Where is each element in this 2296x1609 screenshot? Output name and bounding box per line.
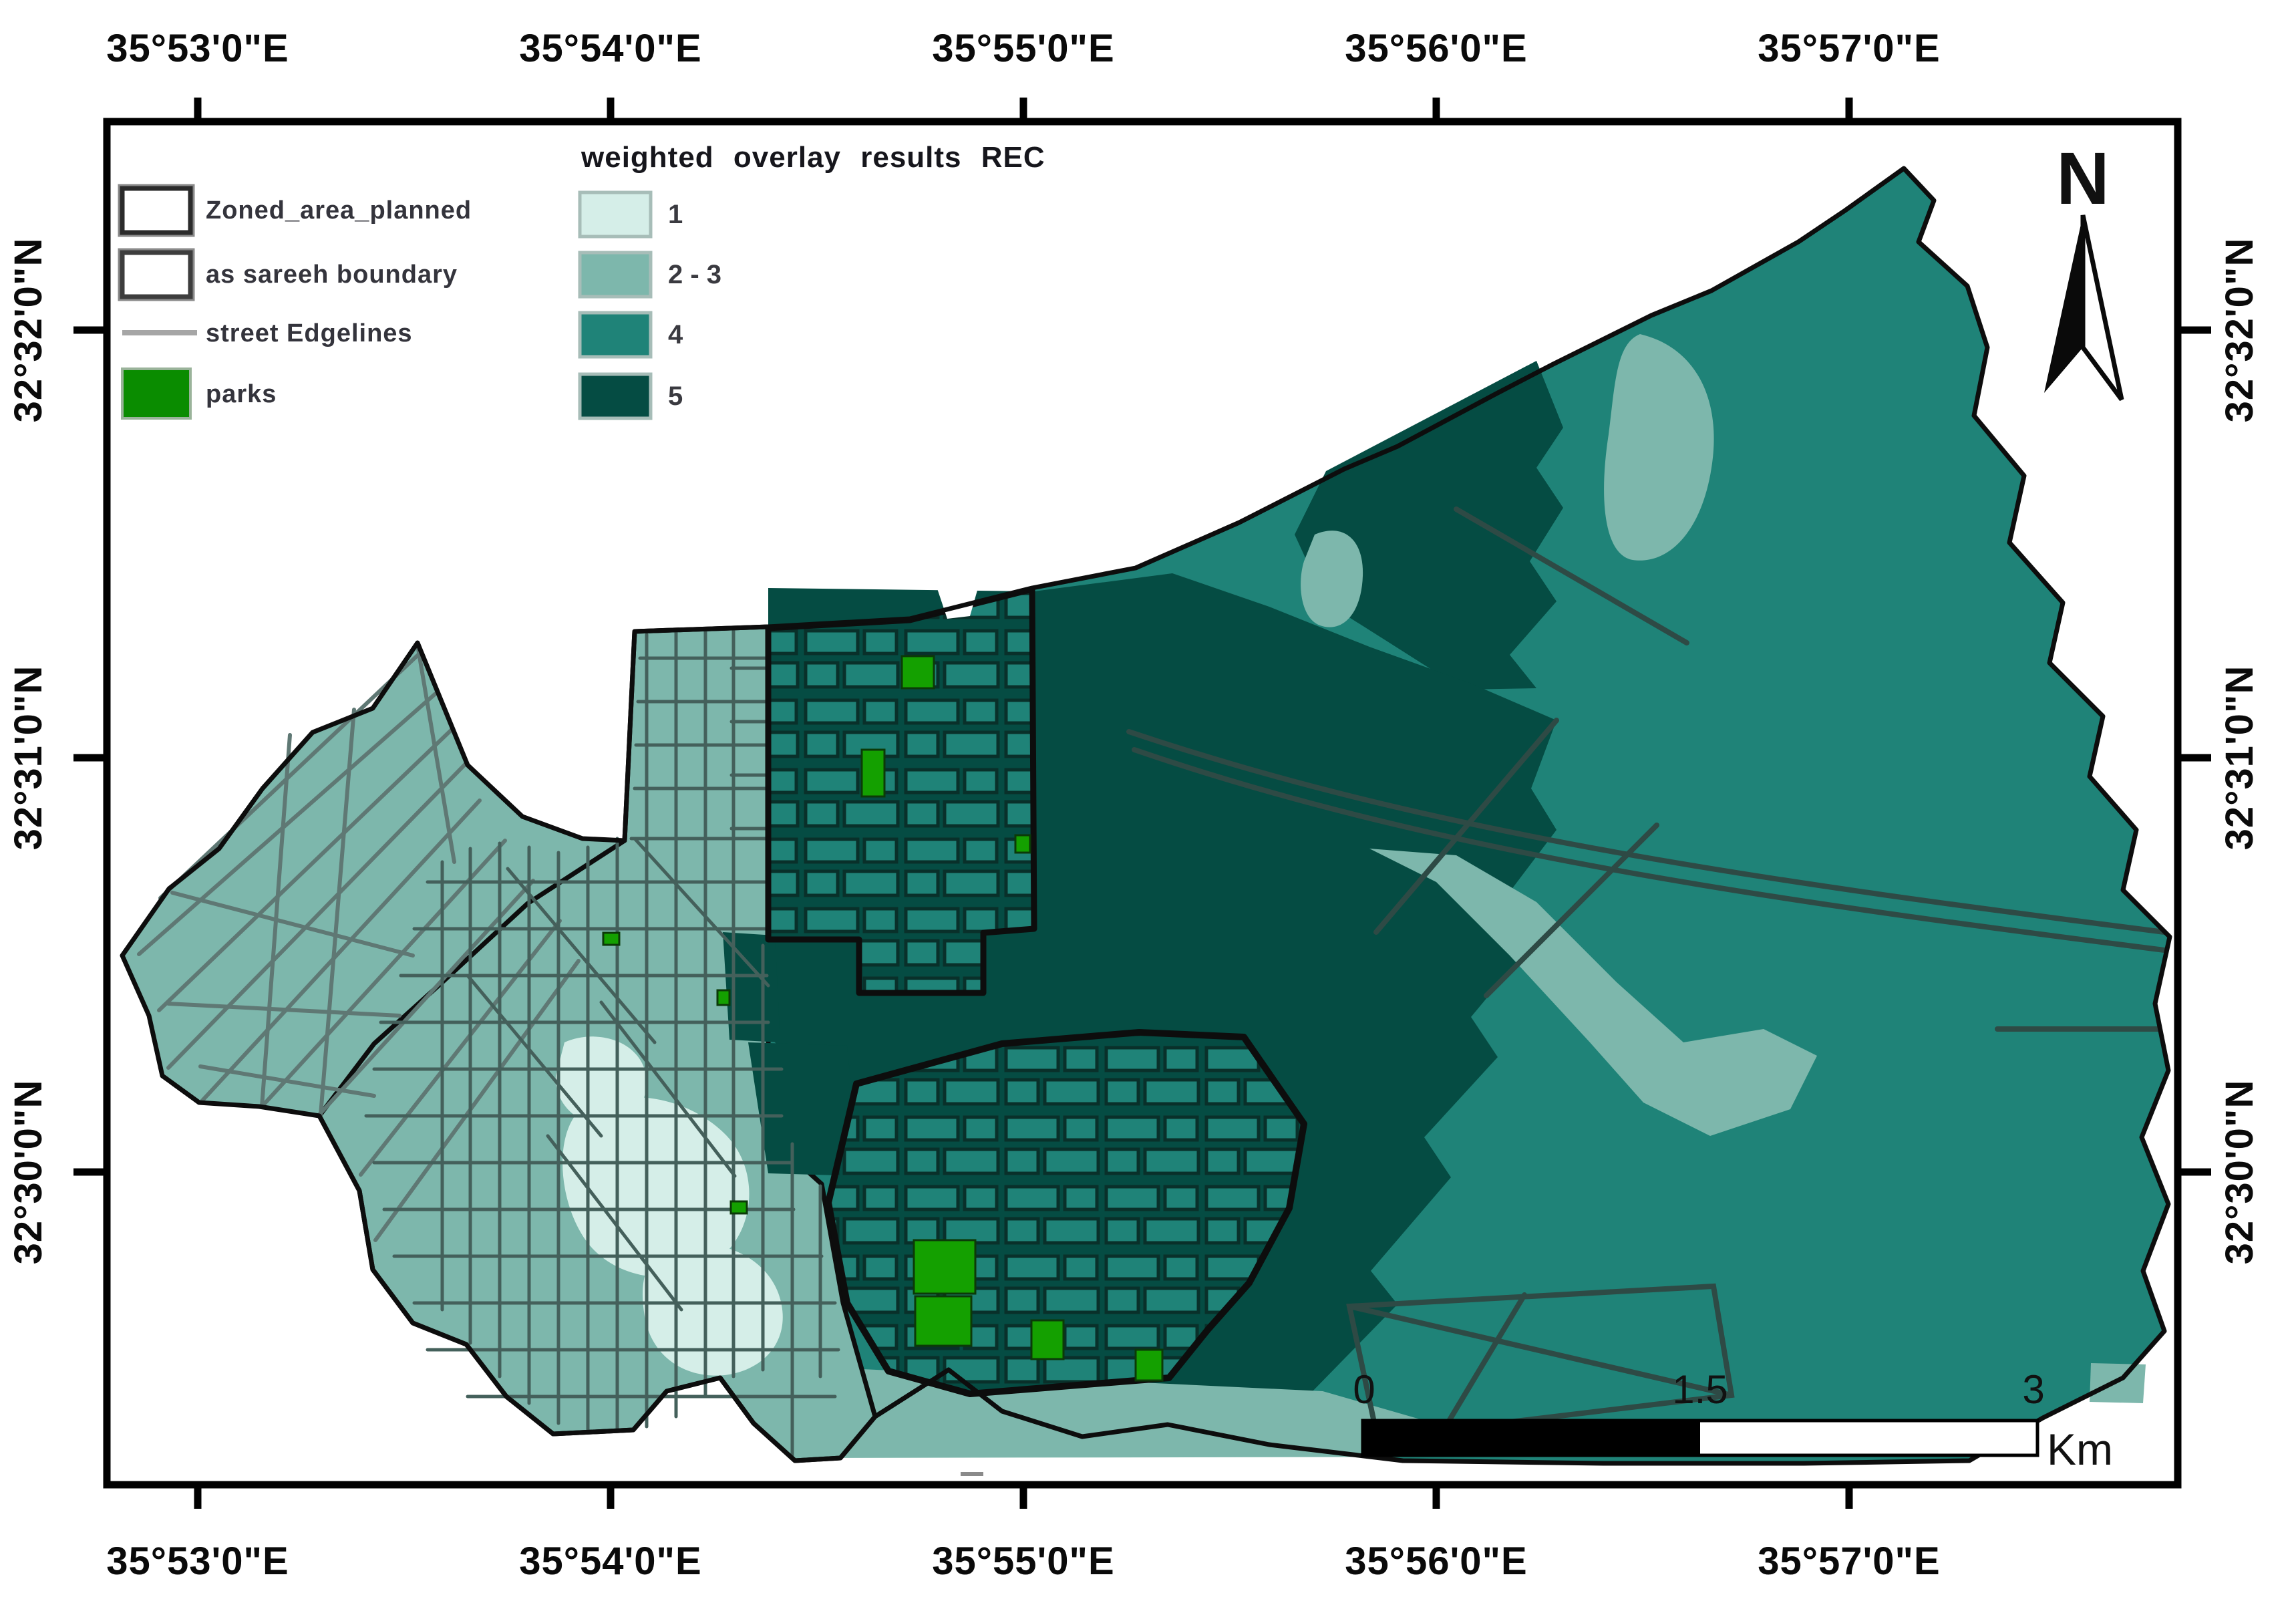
axis-label-bottom: 35°54'0"E <box>519 1540 701 1583</box>
axis-label-top: 35°57'0"E <box>1758 27 1940 70</box>
park <box>902 656 934 688</box>
park <box>731 1201 747 1213</box>
park <box>915 1296 971 1346</box>
axis-label-right: 32°31'0"N <box>2218 666 2261 851</box>
axis-label-left: 32°32'0"N <box>7 238 50 423</box>
park <box>603 933 619 945</box>
north-arrow-right-half <box>2083 215 2122 400</box>
map-canvas: 35°53'0"E35°54'0"E35°55'0"E35°56'0"E35°5… <box>0 0 2296 1609</box>
axis-label-top: 35°56'0"E <box>1345 27 1527 70</box>
legend-label: street Edgelines <box>206 319 413 347</box>
overlay-legend-title: weighted overlay results REC <box>581 141 1045 174</box>
axis-label-bottom: 35°57'0"E <box>1758 1540 1940 1583</box>
overlay-class-label: 5 <box>668 382 683 411</box>
north-label: N <box>2056 138 2109 220</box>
axis-label-right: 32°30'0"N <box>2218 1080 2261 1265</box>
overlay-class-swatch <box>580 374 651 418</box>
scale-bar-number: 1.5 <box>1672 1367 1728 1412</box>
legend-label: parks <box>206 380 277 408</box>
scale-bar-unit: Km <box>2047 1425 2113 1474</box>
region-dark-pocket-1 <box>723 932 780 1042</box>
overlay-class-label: 2 - 3 <box>668 260 721 289</box>
overlay-class-swatch <box>580 192 651 237</box>
axis-label-left: 32°31'0"N <box>7 666 50 851</box>
legend-label: as sareeh boundary <box>206 261 458 289</box>
axis-label-bottom: 35°55'0"E <box>932 1540 1114 1583</box>
overlay-class-label: 4 <box>668 320 683 349</box>
park <box>914 1240 975 1294</box>
map-layers <box>122 168 2170 1474</box>
axis-label-top: 35°54'0"E <box>519 27 701 70</box>
park <box>862 750 884 796</box>
axis-label-bottom: 35°56'0"E <box>1345 1540 1527 1583</box>
legend-swatch-outline <box>122 188 190 233</box>
legend-label: Zoned_area_planned <box>206 196 472 225</box>
axis-label-bottom: 35°53'0"E <box>106 1540 289 1583</box>
park <box>1136 1350 1162 1380</box>
scale-bar-number: 0 <box>1353 1367 1375 1412</box>
overlay-class-swatch <box>580 313 651 357</box>
layer-legend: Zoned_area_plannedas sareeh boundarystre… <box>122 188 472 418</box>
region-light-nick-br <box>2090 1363 2146 1403</box>
overlay-class-swatch <box>580 253 651 297</box>
axis-label-right: 32°32'0"N <box>2218 238 2261 423</box>
scale-bar-black-segment <box>1363 1421 1700 1455</box>
overlay-legend: weighted overlay results REC 12 - 345 <box>580 141 1045 418</box>
legend-swatch-outline <box>122 253 190 297</box>
north-arrow-left-half <box>2044 215 2083 393</box>
overlay-class-label: 1 <box>668 200 683 229</box>
legend-fill-swatch <box>122 369 190 418</box>
axis-label-top: 35°55'0"E <box>932 27 1114 70</box>
axis-label-top: 35°53'0"E <box>106 27 289 70</box>
park <box>717 990 729 1005</box>
scale-bar-number: 3 <box>2022 1367 2044 1412</box>
map-figure: 35°53'0"E35°54'0"E35°55'0"E35°56'0"E35°5… <box>0 0 2296 1609</box>
axis-label-left: 32°30'0"N <box>7 1080 50 1265</box>
north-arrow-icon: N <box>2044 138 2122 400</box>
park <box>1031 1320 1063 1359</box>
park <box>1015 835 1030 853</box>
